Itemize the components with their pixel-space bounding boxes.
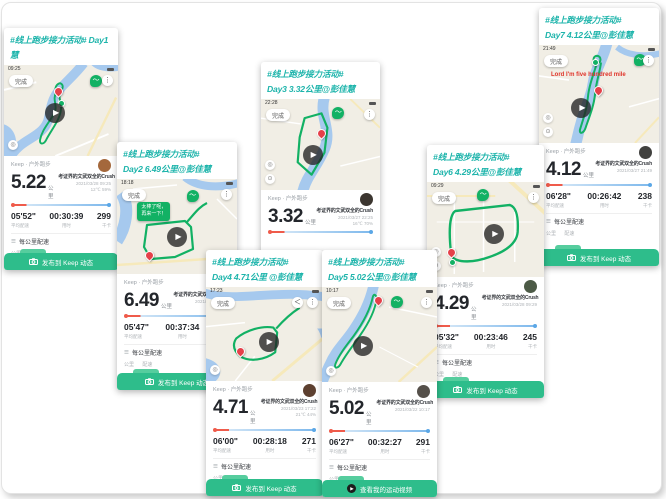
camera-icon bbox=[453, 386, 462, 393]
more-icon[interactable]: ⋮ bbox=[307, 297, 318, 308]
status-bar: 21:49 bbox=[539, 45, 659, 53]
phone-screenshot-day4: #线上跑步接力活动# Day4 4.71公里 @彭佳慧 17:23 完成 ＜ ⋮ bbox=[206, 250, 323, 496]
caption-line1: #线上跑步接力活动# Day1 bbox=[10, 33, 112, 48]
locate-icon[interactable]: ◎ bbox=[326, 366, 336, 376]
per-km-title: 每公里配速 bbox=[337, 463, 367, 472]
screenshot-collage: #线上跑步接力活动# Day1 慧 09:25 完成 〜 ⋮ ◎ bbox=[0, 0, 666, 499]
phone-screenshot-day7: #线上跑步接力活动# Day7 4.12公里@彭佳慧 21:49 完成 〜 ⋮ … bbox=[539, 8, 659, 266]
caption-line1: #线上跑步接力活动# bbox=[545, 13, 653, 28]
more-icon[interactable]: ⋮ bbox=[421, 297, 432, 308]
publish-button[interactable]: 发布到 Keep 动态 bbox=[427, 381, 544, 398]
play-button[interactable]: ▶ bbox=[167, 227, 187, 247]
list-icon: ☰ bbox=[124, 350, 129, 356]
pace-distribution-line bbox=[435, 325, 536, 327]
share-icon[interactable]: ＜ bbox=[292, 297, 303, 308]
stat-calories: 291千卡 bbox=[416, 437, 430, 455]
distance-unit: 公里 bbox=[48, 184, 58, 200]
nickname: 考证界的文武双全的Crush bbox=[316, 207, 373, 214]
stat-calories: 238千卡 bbox=[638, 191, 652, 209]
battery-icon bbox=[533, 185, 540, 188]
distance-unit: 公里 bbox=[583, 171, 594, 179]
done-button[interactable]: 完成 bbox=[327, 297, 351, 309]
stat-pace: 05'32"平均配速 bbox=[434, 332, 459, 350]
phone-screenshot-day5: #线上跑步接力活动# Day5 5.02公里@彭佳慧 10:17 完成 〜 ⋮ … bbox=[322, 250, 437, 497]
distance-value: 4.29 bbox=[434, 294, 469, 314]
divider bbox=[434, 354, 537, 355]
play-button[interactable]: ▶ bbox=[259, 332, 279, 352]
workout-datetime: 2021/03/27 22:25 bbox=[316, 215, 373, 220]
camera-icon bbox=[567, 254, 576, 261]
done-button[interactable]: 完成 bbox=[544, 55, 568, 67]
compass-icon[interactable]: ⊙ bbox=[543, 127, 553, 137]
status-bar: 10:17 bbox=[322, 287, 437, 295]
done-button[interactable]: 完成 bbox=[432, 192, 456, 204]
status-time: 21:49 bbox=[543, 46, 556, 52]
route-map[interactable]: 17:23 完成 ＜ ⋮ ◎ ▶ bbox=[206, 287, 323, 381]
battery-icon bbox=[226, 182, 233, 185]
status-bar: 22:28 bbox=[261, 99, 380, 107]
pace-distribution-line bbox=[330, 430, 429, 432]
stat-pace: 06'00"平均配速 bbox=[213, 436, 238, 454]
compass-icon[interactable]: ⊙ bbox=[265, 174, 275, 184]
distance-value: 5.22 bbox=[11, 173, 46, 193]
cheer-bubble-icon[interactable]: 〜 bbox=[187, 190, 199, 202]
avatar[interactable] bbox=[98, 159, 111, 172]
status-bar: 18:18 bbox=[117, 179, 237, 187]
distance-unit: 公里 bbox=[471, 305, 482, 321]
divider bbox=[11, 233, 111, 234]
hashtag-caption: #线上跑步接力活动# Day4 4.71公里 @彭佳慧 bbox=[206, 250, 323, 287]
camera-icon bbox=[145, 378, 154, 385]
caption-line1: #线上跑步接力活动# bbox=[433, 150, 538, 165]
tooltip-line2: 再来一下！ bbox=[141, 211, 166, 219]
stat-pace: 05'52"平均配速 bbox=[11, 211, 36, 229]
battery-icon bbox=[107, 68, 114, 71]
done-button[interactable]: 完成 bbox=[9, 75, 33, 87]
workout-datetime: 2021/03/22 10:17 bbox=[376, 407, 430, 412]
stat-calories: 271千卡 bbox=[302, 436, 316, 454]
pace-distribution-line bbox=[547, 184, 651, 186]
pace-distribution-line bbox=[269, 231, 372, 233]
battery-icon bbox=[369, 102, 376, 105]
nickname: 考证界的文武双全的Crush bbox=[58, 173, 111, 180]
hashtag-caption: #线上跑步接力活动# Day5 5.02公里@彭佳慧 bbox=[322, 250, 437, 287]
done-button[interactable]: 完成 bbox=[266, 109, 290, 121]
workout-datetime: 2021/03/28 09:25 bbox=[58, 181, 111, 186]
stat-pace: 06'28"平均配速 bbox=[546, 191, 571, 209]
status-time: 09:25 bbox=[8, 66, 21, 72]
done-button[interactable]: 完成 bbox=[211, 297, 235, 309]
publish-label: 发布到 Keep 动态 bbox=[42, 257, 93, 267]
divider bbox=[213, 458, 316, 459]
locate-icon[interactable]: ◎ bbox=[210, 365, 220, 375]
more-icon[interactable]: ⋮ bbox=[643, 55, 654, 66]
distance-value: 5.02 bbox=[329, 399, 364, 419]
map-annotation: Lord I'm five hundred mile bbox=[551, 72, 626, 78]
distance-value: 4.71 bbox=[213, 398, 248, 418]
distance-unit: 公里 bbox=[366, 410, 376, 426]
tooltip-line1: 太棒了呢， bbox=[141, 204, 166, 212]
nickname: 考证界的文武双全的Crush bbox=[595, 160, 652, 167]
app-label: Keep · 户外跑步 bbox=[329, 386, 369, 394]
battery-icon bbox=[312, 290, 319, 293]
app-label: Keep · 户外跑步 bbox=[124, 278, 164, 286]
nickname: 考证界的文武双全的Crush bbox=[376, 399, 430, 406]
stat-calories: 245千卡 bbox=[523, 332, 537, 350]
workout-datetime: 2021/03/28 09:29 bbox=[482, 302, 537, 307]
caption-line2: Day6 4.29公里@彭佳慧 bbox=[433, 165, 538, 180]
caption-line1: #线上跑步接力活动# bbox=[212, 255, 317, 270]
cheer-bubble-icon[interactable]: 〜 bbox=[477, 189, 489, 201]
publish-button[interactable]: 发布到 Keep 动态 bbox=[206, 479, 323, 496]
stat-duration: 00:23:46用时 bbox=[474, 332, 508, 350]
caption-line1: #线上跑步接力活动# bbox=[123, 147, 231, 162]
route-map[interactable]: 22:28 完成 〜 ⋮ ◎ ⊙ ▶ bbox=[261, 99, 380, 190]
hashtag-caption: #线上跑步接力活动# Day7 4.12公里@彭佳慧 bbox=[539, 8, 659, 45]
weather-info: 12℃ 59% bbox=[58, 187, 111, 193]
weather-info: 16℃ 70% bbox=[316, 221, 373, 227]
list-icon: ☰ bbox=[11, 239, 16, 245]
status-time: 18:18 bbox=[121, 180, 134, 186]
distance-unit: 公里 bbox=[161, 302, 172, 310]
status-bar: 09:25 bbox=[4, 65, 118, 73]
hashtag-caption: #线上跑步接力活动# Day2 6.49公里@彭佳慧 bbox=[117, 142, 237, 179]
weather-info: 21℃ 44% bbox=[261, 412, 316, 418]
stat-duration: 00:30:39用时 bbox=[49, 211, 83, 229]
per-km-columns: 公里 配速 bbox=[546, 230, 652, 237]
nickname: 考证界的文武双全的Crush bbox=[482, 294, 537, 301]
app-label: Keep · 户外跑步 bbox=[268, 194, 308, 202]
battery-icon bbox=[648, 48, 655, 51]
route-map[interactable]: 09:25 完成 〜 ⋮ ◎ ▶ bbox=[4, 65, 118, 156]
avatar[interactable] bbox=[303, 384, 316, 397]
per-km-section[interactable]: ☰ 每公里配速 bbox=[213, 462, 316, 471]
hashtag-caption: #线上跑步接力活动# Day1 慧 bbox=[4, 28, 118, 65]
camera-icon bbox=[29, 258, 38, 265]
list-icon: ☰ bbox=[329, 465, 334, 471]
phone-screenshot-day1: #线上跑步接力活动# Day1 慧 09:25 完成 〜 ⋮ ◎ bbox=[4, 28, 118, 270]
app-label: Keep · 户外跑步 bbox=[546, 147, 586, 155]
per-km-title: 每公里配速 bbox=[554, 217, 584, 226]
publish-label: 发布到 Keep 动态 bbox=[466, 385, 517, 395]
locate-icon[interactable]: ◎ bbox=[543, 113, 553, 123]
cheer-tooltip: 太棒了呢， 再来一下！ bbox=[137, 202, 170, 221]
status-time: 10:17 bbox=[326, 288, 339, 294]
start-point-icon bbox=[592, 59, 599, 66]
distance-unit: 公里 bbox=[250, 409, 261, 425]
pace-distribution-line bbox=[214, 429, 315, 431]
distance-value: 3.32 bbox=[268, 207, 303, 227]
avatar[interactable] bbox=[417, 385, 430, 398]
stat-pace: 06'27"平均配速 bbox=[329, 437, 354, 455]
stat-duration: 00:37:34用时 bbox=[165, 322, 199, 340]
distance-value: 6.49 bbox=[124, 291, 159, 311]
app-label: Keep · 户外跑步 bbox=[213, 385, 253, 393]
route-map[interactable]: 09:29 完成 〜 ⋮ ◎ ⊙ ▶ bbox=[427, 182, 544, 277]
pace-distribution-line bbox=[12, 204, 110, 206]
locate-icon[interactable]: ◎ bbox=[265, 160, 275, 170]
route-map[interactable]: 21:49 完成 〜 ⋮ ◎ ⊙ Lord I'm five hundred m… bbox=[539, 45, 659, 143]
publish-label: 发布到 Keep 动态 bbox=[245, 483, 296, 493]
status-bar: 17:23 bbox=[206, 287, 323, 295]
publish-button[interactable]: 发布到 Keep 动态 bbox=[539, 249, 659, 266]
more-icon[interactable]: ⋮ bbox=[102, 75, 113, 86]
app-label: Keep · 户外跑步 bbox=[434, 281, 474, 289]
stat-duration: 00:28:18用时 bbox=[253, 436, 287, 454]
nickname: 考证界的文武双全的Crush bbox=[261, 398, 316, 405]
more-icon[interactable]: ⋮ bbox=[528, 192, 539, 203]
cheer-bubble-icon[interactable]: 〜 bbox=[90, 75, 102, 87]
stat-duration: 00:26:42用时 bbox=[587, 191, 621, 209]
stat-calories: 299千卡 bbox=[97, 211, 111, 229]
stat-duration: 00:32:27用时 bbox=[368, 437, 402, 455]
status-time: 09:29 bbox=[431, 183, 444, 189]
more-icon[interactable]: ⋮ bbox=[221, 189, 232, 200]
list-icon: ☰ bbox=[213, 464, 218, 470]
video-play-icon: ▶ bbox=[347, 484, 356, 493]
hashtag-caption: #线上跑步接力活动# Day3 3.32公里@彭佳慧 bbox=[261, 62, 380, 99]
per-km-section[interactable]: ☰ 每公里配速 bbox=[546, 217, 652, 226]
per-km-title: 每公里配速 bbox=[442, 358, 472, 367]
caption-line2: Day4 4.71公里 @彭佳慧 bbox=[212, 270, 317, 285]
workout-datetime: 2021/03/27 21:49 bbox=[595, 168, 652, 173]
list-icon: ☰ bbox=[546, 219, 551, 225]
camera-icon bbox=[232, 484, 241, 491]
publish-button[interactable]: 发布到 Keep 动态 bbox=[4, 253, 118, 270]
avatar[interactable] bbox=[360, 193, 373, 206]
avatar[interactable] bbox=[524, 280, 537, 293]
play-button[interactable]: ▶ bbox=[303, 145, 323, 165]
app-label: Keep · 户外跑步 bbox=[11, 160, 51, 168]
done-button[interactable]: 完成 bbox=[122, 189, 146, 201]
caption-line1: #线上跑步接力活动# bbox=[328, 255, 431, 270]
locate-icon[interactable]: ◎ bbox=[8, 140, 18, 150]
publish-label: 发布到 Keep 动态 bbox=[580, 253, 631, 263]
status-time: 17:23 bbox=[210, 288, 223, 294]
caption-line1: #线上跑步接力活动# bbox=[267, 67, 374, 82]
per-km-section[interactable]: ☰ 每公里配速 bbox=[329, 463, 430, 472]
avatar[interactable] bbox=[639, 146, 652, 159]
distance-unit: 公里 bbox=[305, 218, 316, 226]
battery-icon bbox=[426, 290, 433, 293]
caption-line2: Day7 4.12公里@彭佳慧 bbox=[545, 28, 653, 43]
divider bbox=[546, 213, 652, 214]
caption-line2: 慧 bbox=[10, 48, 112, 63]
per-km-title: 每公里配速 bbox=[19, 237, 49, 246]
caption-line2: Day5 5.02公里@彭佳慧 bbox=[328, 270, 431, 285]
distance-value: 4.12 bbox=[546, 160, 581, 180]
route-map[interactable]: 10:17 完成 〜 ⋮ ◎ ▶ bbox=[322, 287, 437, 382]
view-video-button[interactable]: ▶ 查看我的运动视频 bbox=[322, 480, 437, 497]
caption-line2: Day3 3.32公里@彭佳慧 bbox=[267, 82, 374, 97]
cheer-bubble-icon[interactable]: 〜 bbox=[391, 296, 403, 308]
per-km-title: 每公里配速 bbox=[221, 462, 251, 471]
caption-line2: Day2 6.49公里@彭佳慧 bbox=[123, 162, 231, 177]
view-video-label: 查看我的运动视频 bbox=[360, 484, 412, 494]
per-km-title: 每公里配速 bbox=[132, 348, 162, 357]
stat-pace: 05'47"平均配速 bbox=[124, 322, 149, 340]
more-icon[interactable]: ⋮ bbox=[364, 109, 375, 120]
per-km-section[interactable]: ☰ 每公里配速 bbox=[434, 358, 537, 367]
divider bbox=[329, 459, 430, 460]
status-time: 22:28 bbox=[265, 100, 278, 106]
publish-label: 发布到 Keep 动态 bbox=[158, 377, 209, 387]
workout-datetime: 2021/03/23 17:22 bbox=[261, 406, 316, 411]
hashtag-caption: #线上跑步接力活动# Day6 4.29公里@彭佳慧 bbox=[427, 145, 544, 182]
phone-screenshot-day6: #线上跑步接力活动# Day6 4.29公里@彭佳慧 09:29 完成 〜 ⋮ … bbox=[427, 145, 544, 398]
per-km-section[interactable]: ☰ 每公里配速 bbox=[11, 237, 111, 246]
